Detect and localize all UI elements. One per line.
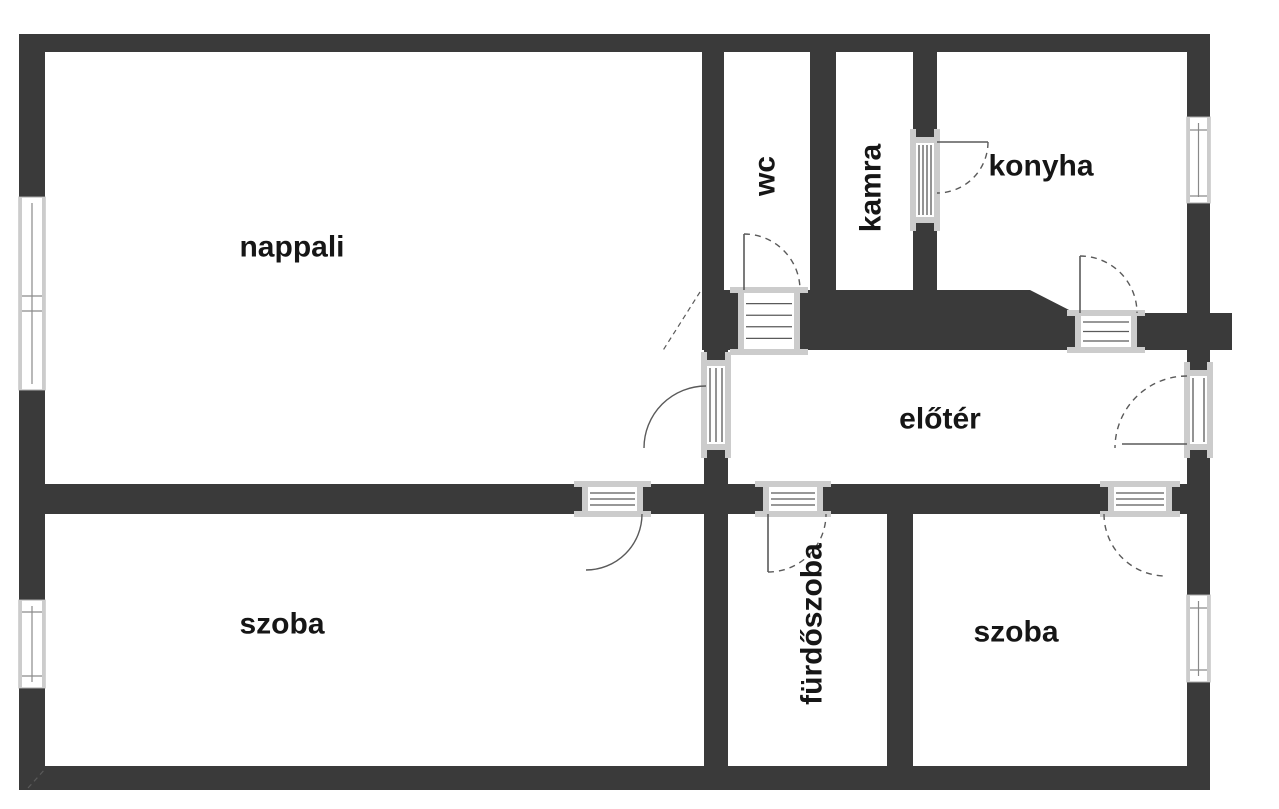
door-kamra-sill	[934, 129, 940, 231]
window-szoba-right-sill	[1207, 595, 1210, 682]
wall-nappali-wc	[702, 52, 724, 290]
door-konyha-jamb	[1131, 313, 1137, 350]
wall-furdo-left	[704, 514, 728, 766]
left-wall-lower	[19, 688, 45, 766]
plan-background	[0, 0, 1279, 809]
wall-below-nappali-door	[704, 450, 728, 484]
wall-kamra-konyha-bot	[913, 223, 937, 290]
room-label-konyha: konyha	[988, 150, 1093, 183]
floor-plan-svg: nappaliwckamrakonyhaelőtérszobafürdőszob…	[0, 0, 1279, 809]
center-band-right	[1137, 313, 1232, 350]
door-nappali-sill	[701, 352, 707, 458]
middle-wall-seg3	[823, 484, 1108, 514]
room-label-nappali: nappali	[239, 231, 344, 264]
room-label-eloter: előtér	[899, 403, 981, 436]
door-furdoszoba-jamb	[817, 484, 823, 514]
door-wc-jamb	[794, 290, 800, 352]
room-label-kamra: kamra	[855, 143, 888, 232]
door-nappali-jamb	[704, 360, 728, 366]
door-kamra-jamb	[913, 217, 937, 223]
door-bejarat	[1187, 370, 1210, 450]
middle-wall-seg4	[1172, 484, 1210, 514]
right-wall-a	[1187, 34, 1210, 117]
window-konyha-right-sill	[1187, 117, 1190, 203]
top-wall	[19, 34, 1210, 52]
door-bejarat-jamb	[1187, 444, 1210, 450]
left-wall-mid	[19, 390, 45, 600]
floor-plan-canvas: nappaliwckamrakonyhaelőtérszobafürdőszob…	[0, 0, 1279, 809]
right-wall-c	[1187, 450, 1210, 595]
door-kamra-jamb	[913, 137, 937, 143]
door-furdoszoba-jamb	[763, 484, 769, 514]
room-label-szoba-jobb: szoba	[973, 616, 1058, 649]
door-szoba-jobb-jamb	[1166, 484, 1172, 514]
window-szoba-right-sill	[1187, 595, 1190, 682]
door-bejarat-jamb	[1187, 370, 1210, 376]
door-szoba-jobb-jamb	[1108, 484, 1114, 514]
room-label-furdoszoba: fürdőszoba	[796, 543, 829, 705]
door-wc-jamb	[738, 290, 744, 352]
right-wall-d	[1187, 682, 1210, 766]
door-bejarat-sill	[1207, 362, 1213, 458]
wall-wc-kamra	[810, 52, 836, 290]
door-kamra-sill	[910, 129, 916, 231]
wall-above-nappali-door	[704, 350, 728, 360]
window-szoba-left-sill	[19, 600, 22, 688]
door-szoba-bal-jamb	[582, 484, 588, 514]
door-nappali-sill	[725, 352, 731, 458]
door-konyha-jamb	[1075, 313, 1081, 350]
room-label-wc: wc	[749, 156, 782, 197]
door-nappali-jamb	[704, 444, 728, 450]
wall-kamra-konyha-top	[913, 52, 937, 137]
left-wall-upper	[19, 34, 45, 197]
bottom-wall	[19, 766, 1210, 790]
middle-wall-seg2	[643, 484, 763, 514]
door-kamra	[913, 137, 937, 223]
room-label-szoba-bal: szoba	[239, 608, 324, 641]
window-nappali-left-sill	[19, 197, 22, 390]
window-szoba-left-sill	[42, 600, 45, 688]
window-konyha-right-sill	[1207, 117, 1210, 203]
door-szoba-bal-jamb	[637, 484, 643, 514]
door-wc	[738, 290, 800, 352]
middle-wall-left	[45, 484, 582, 514]
wall-furdo-right	[887, 514, 913, 766]
window-nappali-left-sill	[42, 197, 45, 390]
